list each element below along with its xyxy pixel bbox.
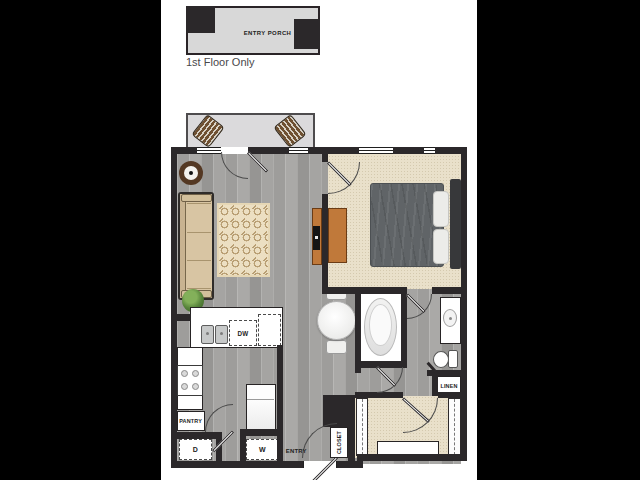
porch-label: ENTRY PORCH	[223, 29, 312, 37]
refrigerator-split	[247, 399, 274, 400]
wall	[357, 454, 363, 468]
wall	[171, 314, 191, 321]
headboard	[450, 179, 461, 269]
wall	[240, 429, 283, 436]
letterbox-left	[0, 0, 161, 480]
washer-label: W	[259, 446, 266, 453]
wall	[240, 434, 246, 461]
wall	[322, 194, 328, 291]
wall	[323, 395, 355, 427]
dishwasher-label: DW	[238, 330, 249, 336]
wall	[438, 392, 461, 398]
wall	[432, 287, 461, 294]
side-table-center	[189, 171, 193, 175]
closet-rod	[356, 398, 368, 456]
wall	[322, 152, 328, 162]
stove-burner	[192, 383, 199, 390]
window	[424, 147, 435, 154]
sofa	[178, 192, 214, 300]
entry-label: ENTRY	[281, 445, 311, 455]
side-table	[179, 161, 203, 185]
sofa-back	[180, 194, 186, 298]
wall	[171, 147, 177, 468]
closet-rod	[448, 398, 461, 456]
floor-plan-image: ENTRY PORCH 1st Floor Only DW	[0, 0, 640, 480]
bathtub-basin	[369, 304, 392, 346]
toilet-tank	[448, 350, 458, 368]
pantry-label: PANTRY	[180, 418, 203, 423]
dining-table	[317, 301, 356, 340]
dishwasher: DW	[229, 320, 257, 346]
window	[289, 147, 308, 154]
porch-wall-block	[186, 6, 215, 33]
dining-chair	[326, 340, 347, 354]
bed-pillow	[433, 191, 449, 227]
washer: W	[246, 439, 279, 460]
side-table-top	[184, 166, 198, 180]
toilet-bowl	[433, 351, 449, 368]
wall	[348, 427, 355, 461]
area-rug	[217, 203, 270, 277]
refrigerator	[246, 384, 276, 430]
entry-label-text: ENTRY	[286, 447, 307, 453]
stove-burner	[192, 370, 199, 377]
closet-label-box: CLOSET	[330, 427, 348, 458]
sofa-arm	[181, 194, 212, 202]
letterbox-right	[477, 0, 640, 480]
wall	[322, 287, 407, 294]
window	[359, 147, 393, 154]
dryer: D	[179, 439, 212, 460]
kitchen-sink	[201, 325, 214, 344]
dresser	[328, 208, 347, 263]
bathtub	[364, 298, 397, 356]
upper-cabinet	[258, 314, 281, 346]
wall	[171, 432, 222, 439]
wall	[357, 454, 467, 461]
floor-note: 1st Floor Only	[186, 56, 254, 68]
tv	[313, 226, 320, 250]
bed-pillow	[433, 229, 449, 264]
vanity-sink	[443, 309, 457, 327]
kitchen-sink	[215, 325, 228, 344]
wall	[461, 147, 467, 461]
sink-drain	[449, 317, 452, 320]
closet-label-text: CLOSET	[336, 431, 341, 454]
dryer-label: D	[193, 446, 198, 453]
tv-dot	[315, 236, 318, 239]
stove-burner	[181, 383, 188, 390]
pantry: PANTRY	[177, 411, 205, 431]
stove	[177, 365, 203, 396]
linen-label: LINEN	[440, 383, 457, 388]
wall	[277, 345, 283, 461]
sofa-cushions	[187, 203, 211, 289]
stove-burner	[181, 370, 188, 377]
